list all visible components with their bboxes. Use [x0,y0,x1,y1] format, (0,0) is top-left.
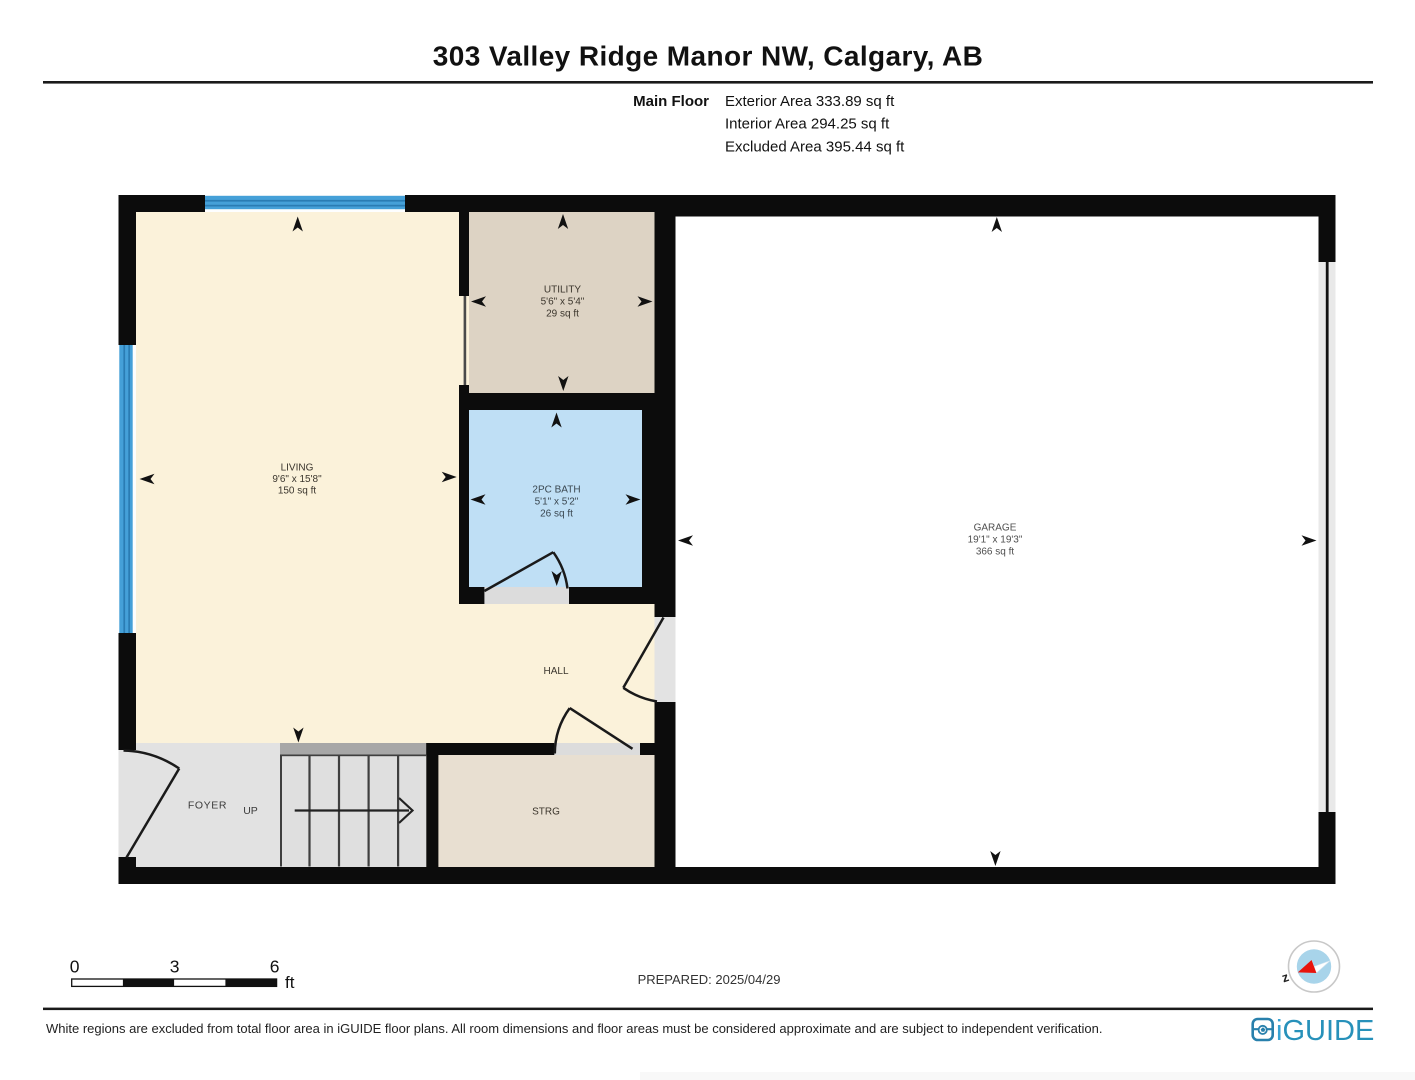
svg-text:9'6" x 15'8": 9'6" x 15'8" [272,474,322,485]
svg-text:3: 3 [170,957,180,977]
svg-text:Main Floor: Main Floor [633,93,709,110]
svg-text:HALL: HALL [543,666,568,677]
svg-text:0: 0 [70,957,80,977]
svg-text:UP: UP [243,805,258,817]
svg-text:PREPARED: 2025/04/29: PREPARED: 2025/04/29 [638,972,781,987]
svg-text:6: 6 [270,957,280,977]
svg-text:366 sq ft: 366 sq ft [976,547,1015,558]
svg-text:19'1" x 19'3": 19'1" x 19'3" [968,535,1023,546]
svg-text:Exterior Area 333.89 sq ft: Exterior Area 333.89 sq ft [725,93,895,110]
svg-text:Interior Area 294.25 sq ft: Interior Area 294.25 sq ft [725,116,890,133]
svg-text:White regions are excluded fro: White regions are excluded from total fl… [46,1021,1102,1036]
svg-text:303 Valley Ridge Manor NW, Cal: 303 Valley Ridge Manor NW, Calgary, AB [433,41,983,72]
svg-text:FOYER: FOYER [188,800,227,812]
svg-text:STRG: STRG [532,807,560,818]
svg-text:LIVING: LIVING [281,463,314,474]
svg-text:150 sq ft: 150 sq ft [278,486,317,497]
svg-text:GARAGE: GARAGE [974,523,1017,534]
svg-text:UTILITY: UTILITY [544,285,582,296]
svg-text:Excluded Area 395.44 sq ft: Excluded Area 395.44 sq ft [725,138,905,155]
svg-text:2PC BATH: 2PC BATH [532,485,580,496]
svg-text:29 sq ft: 29 sq ft [546,309,579,320]
svg-text:iGUIDE: iGUIDE [1276,1015,1374,1047]
svg-text:26 sq ft: 26 sq ft [540,509,573,520]
svg-text:ft: ft [285,973,295,992]
svg-text:5'1" x 5'2": 5'1" x 5'2" [535,497,579,508]
svg-text:5'6" x 5'4": 5'6" x 5'4" [541,297,585,308]
